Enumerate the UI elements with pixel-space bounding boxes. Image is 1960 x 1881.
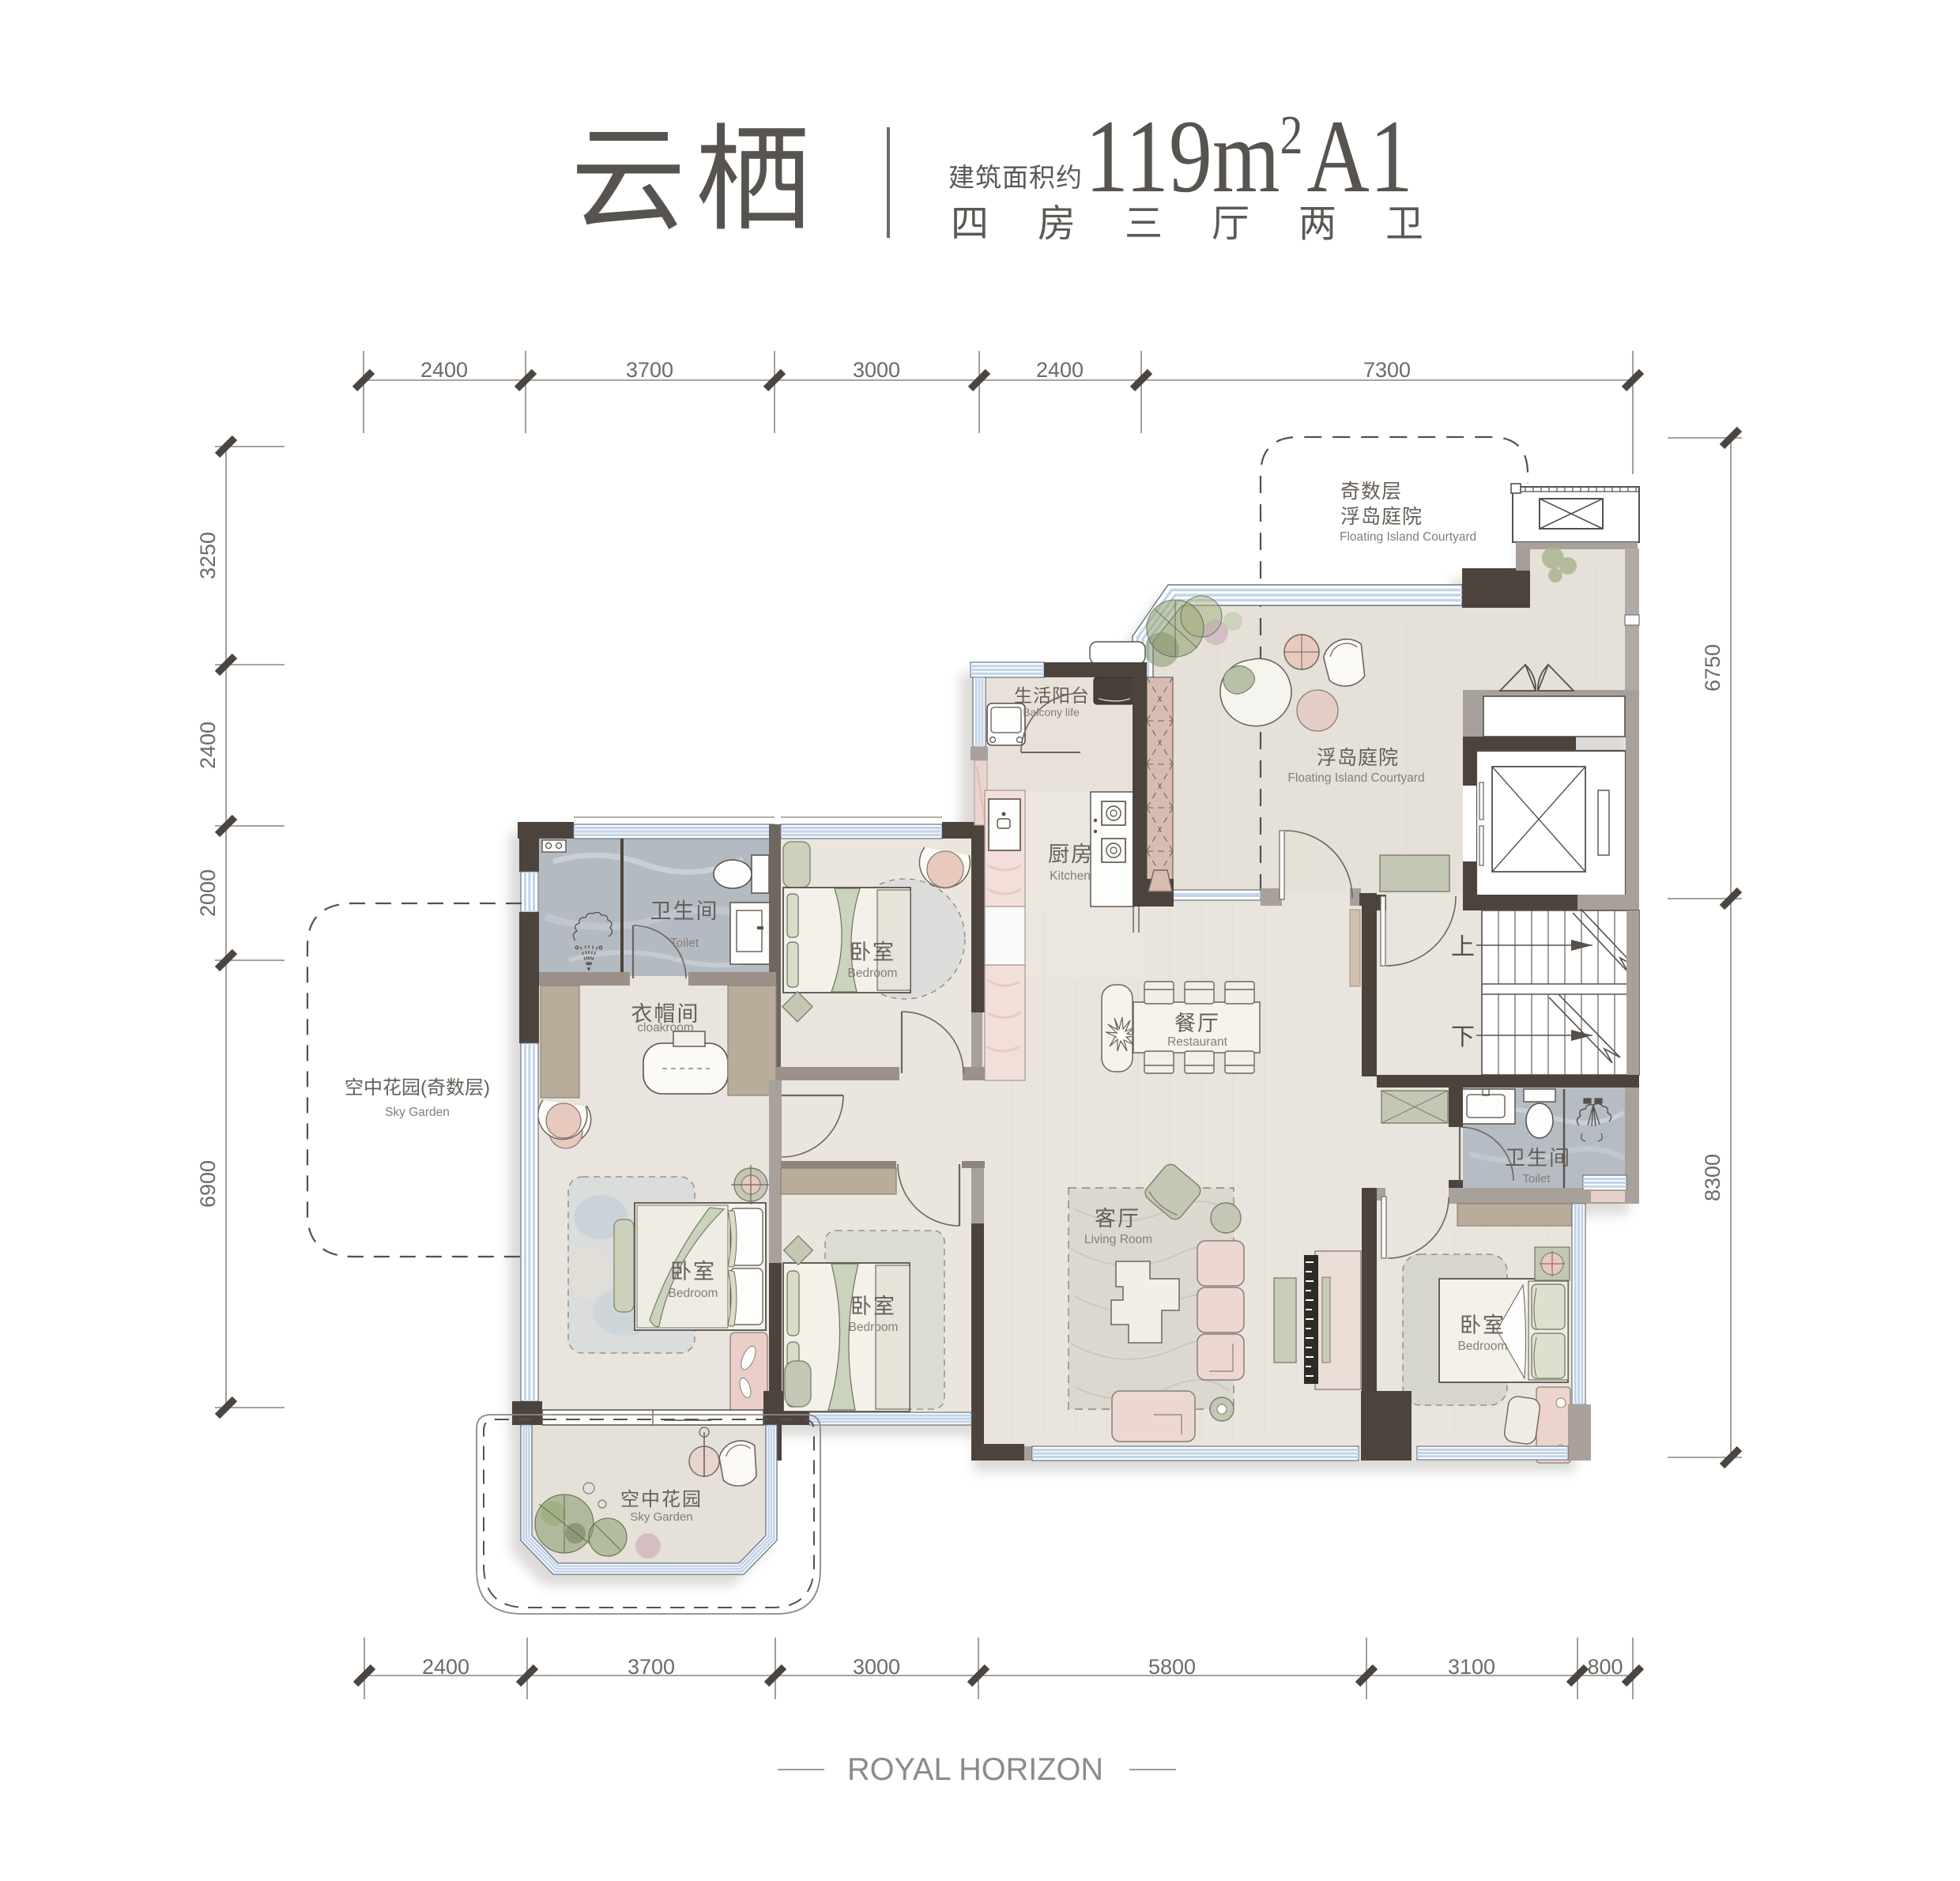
svg-text:客厅: 客厅 [1095,1207,1140,1231]
svg-text:2400: 2400 [422,1655,469,1679]
svg-text:2400: 2400 [420,358,468,382]
svg-text:Bedroom: Bedroom [1458,1340,1508,1353]
svg-text:奇数层: 奇数层 [1340,481,1402,503]
svg-text:2000: 2000 [196,869,220,917]
svg-text:cloakroom: cloakroom [637,1021,694,1035]
svg-text:Balcony life: Balcony life [1023,706,1080,718]
svg-text:空中花园(奇数层): 空中花园(奇数层) [345,1077,490,1099]
svg-text:3250: 3250 [196,532,220,579]
svg-text:空中花园: 空中花园 [620,1489,703,1510]
svg-text:5800: 5800 [1148,1655,1196,1679]
svg-text:餐厅: 餐厅 [1174,1012,1220,1035]
svg-text:卧室: 卧室 [1460,1314,1506,1337]
svg-text:Bedroom: Bedroom [669,1287,718,1300]
svg-text:上: 上 [1451,934,1475,960]
svg-text:浮岛庭院: 浮岛庭院 [1340,506,1423,528]
svg-text:ROYAL HORIZON: ROYAL HORIZON [847,1752,1103,1787]
svg-text:卧室: 卧室 [850,1295,896,1318]
svg-text:119m2A1: 119m2A1 [1085,100,1413,215]
svg-text:3700: 3700 [626,358,673,382]
svg-text:Living Room: Living Room [1084,1233,1152,1246]
svg-text:Toilet: Toilet [1522,1172,1551,1186]
svg-text:2400: 2400 [1036,358,1084,382]
svg-text:Toilet: Toilet [670,937,699,950]
svg-text:卧室: 卧室 [850,940,895,964]
svg-text:3000: 3000 [853,358,900,382]
svg-text:浮岛庭院: 浮岛庭院 [1317,747,1399,769]
svg-text:7300: 7300 [1363,358,1411,382]
svg-text:Floating Island Courtyard: Floating Island Courtyard [1340,530,1476,544]
svg-text:2400: 2400 [196,722,220,769]
svg-text:3000: 3000 [853,1655,900,1679]
svg-text:3700: 3700 [628,1655,675,1679]
svg-text:卧室: 卧室 [670,1260,716,1284]
svg-text:下: 下 [1451,1024,1475,1050]
svg-text:6900: 6900 [196,1160,220,1208]
svg-text:Restaurant: Restaurant [1167,1035,1228,1049]
svg-text:四房三厅两卫: 四房三厅两卫 [951,203,1472,245]
svg-text:Bedroom: Bedroom [848,967,898,980]
svg-text:厨房: 厨房 [1048,842,1094,866]
svg-text:卫生间: 卫生间 [1505,1146,1571,1170]
svg-text:6750: 6750 [1701,644,1724,692]
svg-text:卫生间: 卫生间 [650,899,719,923]
svg-text:建筑面积约: 建筑面积约 [948,163,1083,192]
svg-text:Kitchen: Kitchen [1050,869,1091,883]
svg-text:Bedroom: Bedroom [849,1321,899,1334]
svg-text:云栖: 云栖 [571,117,820,245]
svg-text:3100: 3100 [1448,1655,1495,1679]
svg-text:Sky Garden: Sky Garden [630,1510,692,1524]
svg-text:生活阳台: 生活阳台 [1014,685,1090,706]
svg-text:Sky Garden: Sky Garden [385,1106,450,1119]
svg-text:Floating Island Courtyard: Floating Island Courtyard [1287,771,1424,785]
svg-text:800: 800 [1587,1655,1623,1679]
svg-text:8300: 8300 [1701,1154,1724,1201]
